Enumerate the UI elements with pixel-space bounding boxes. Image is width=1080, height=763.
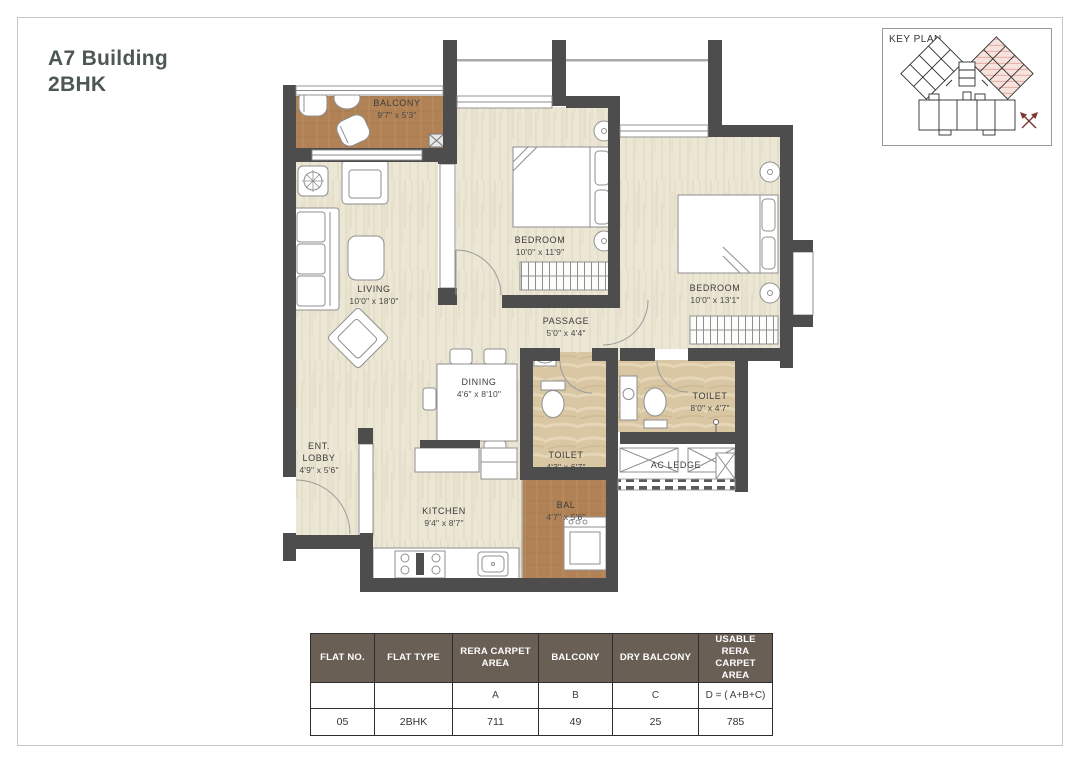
armchair: [342, 160, 388, 204]
sub-flat-type: [375, 682, 453, 708]
svg-text:TOILET: TOILET: [549, 450, 584, 460]
bed-1: [513, 147, 612, 227]
lobby-partition-panel: [359, 444, 373, 535]
coffee-table: [348, 236, 384, 280]
value-rera-carpet: 711: [453, 708, 539, 735]
sub-flat-no: [311, 682, 375, 708]
parapet-line-1: [457, 59, 552, 62]
nightstand-2a: [760, 162, 780, 182]
sub-balcony: B: [539, 682, 613, 708]
svg-text:LOBBY: LOBBY: [302, 453, 335, 463]
nightstand-2b: [760, 283, 780, 303]
sub-rera-carpet: A: [453, 682, 539, 708]
svg-text:8'0" x 4'7": 8'0" x 4'7": [690, 403, 729, 413]
value-flat-type: 2BHK: [375, 708, 453, 735]
svg-text:KITCHEN: KITCHEN: [422, 506, 466, 516]
accent-table: [298, 166, 328, 196]
value-usable-rera: 785: [699, 708, 773, 735]
value-flat-no: 05: [311, 708, 375, 735]
floor-plan-page: A7 Building 2BHK: [0, 0, 1080, 763]
svg-text:BEDROOM: BEDROOM: [515, 235, 566, 245]
svg-text:TOILET: TOILET: [693, 391, 728, 401]
svg-text:4'7" x 5'6": 4'7" x 5'6": [546, 512, 585, 522]
svg-text:BALCONY: BALCONY: [373, 98, 420, 108]
svg-text:9'4" x 8'7": 9'4" x 8'7": [424, 518, 463, 528]
stove: [395, 551, 445, 578]
header-usable-rera: USABLE RERA CARPET AREA: [699, 634, 773, 683]
duct-box-icon: [429, 134, 444, 147]
svg-text:4'3" x 6'7": 4'3" x 6'7": [546, 462, 585, 472]
header-balcony: BALCONY: [539, 634, 613, 683]
room-label-ac-ledge: AC LEDGE: [651, 460, 701, 470]
window-living: [312, 150, 422, 160]
header-flat-no: FLAT NO.: [311, 634, 375, 683]
svg-text:10'0" x 13'1": 10'0" x 13'1": [690, 295, 739, 305]
ac-unit-3: [716, 453, 735, 479]
kitchen-upper-counter: [415, 448, 479, 472]
svg-text:BEDROOM: BEDROOM: [690, 283, 741, 293]
building-name: A7 Building: [48, 46, 168, 72]
svg-text:BAL: BAL: [557, 500, 576, 510]
wc-2: [644, 388, 667, 428]
dining-table: [437, 364, 517, 441]
table-header-row: FLAT NO. FLAT TYPE RERA CARPET AREA BALC…: [311, 634, 773, 683]
header-rera-carpet: RERA CARPET AREA: [453, 634, 539, 683]
header-flat-type: FLAT TYPE: [375, 634, 453, 683]
exterior-duct: [793, 252, 813, 315]
vanity-2: [620, 376, 637, 420]
flat-type-title: 2BHK: [48, 72, 168, 98]
key-plan-box: KEY PLAN: [882, 28, 1052, 146]
fridge: [481, 448, 517, 479]
wardrobe-1: [520, 262, 612, 290]
table-subheader-row: A B C D = ( A+B+C): [311, 682, 773, 708]
living-bedroom-panel: [440, 164, 455, 288]
value-balcony: 49: [539, 708, 613, 735]
ac-ledge-dashed-edge: [618, 479, 735, 490]
area-table: FLAT NO. FLAT TYPE RERA CARPET AREA BALC…: [310, 633, 773, 736]
key-plan-bottom-wing: [919, 94, 1015, 135]
washing-machine: [564, 517, 606, 570]
floor-plan: BALCONY 9'7" x 5'3" BEDROOM 10'0" x 11'9…: [270, 30, 835, 600]
svg-text:PASSAGE: PASSAGE: [543, 316, 590, 326]
parapet-line-2: [566, 59, 708, 62]
svg-text:4'6" x 8'10": 4'6" x 8'10": [457, 389, 501, 399]
sofa: [292, 208, 339, 310]
table-value-row: 05 2BHK 711 49 25 785: [311, 708, 773, 735]
page-title: A7 Building 2BHK: [48, 46, 168, 97]
window-bedroom-2: [620, 125, 708, 137]
value-dry-balcony: 25: [613, 708, 699, 735]
svg-text:DINING: DINING: [461, 377, 496, 387]
bed-2: [678, 195, 778, 273]
svg-text:9'7" x 5'3": 9'7" x 5'3": [377, 110, 416, 120]
window-balcony-railing: [296, 86, 443, 95]
sub-usable-rera: D = ( A+B+C): [699, 682, 773, 708]
svg-text:4'9" x 5'6": 4'9" x 5'6": [299, 465, 338, 475]
svg-text:ENT.: ENT.: [308, 441, 330, 451]
sub-dry-balcony: C: [613, 682, 699, 708]
svg-text:10'0" x 18'0": 10'0" x 18'0": [349, 296, 398, 306]
kitchen-sink: [478, 552, 508, 576]
header-dry-balcony: DRY BALCONY: [613, 634, 699, 683]
wardrobe-2: [690, 316, 778, 344]
wc-1: [541, 381, 565, 418]
svg-text:5'0" x 4'4": 5'0" x 4'4": [546, 328, 585, 338]
svg-text:LIVING: LIVING: [357, 284, 390, 294]
svg-text:10'0" x 11'9": 10'0" x 11'9": [516, 247, 565, 257]
window-bedroom-1: [457, 96, 552, 108]
